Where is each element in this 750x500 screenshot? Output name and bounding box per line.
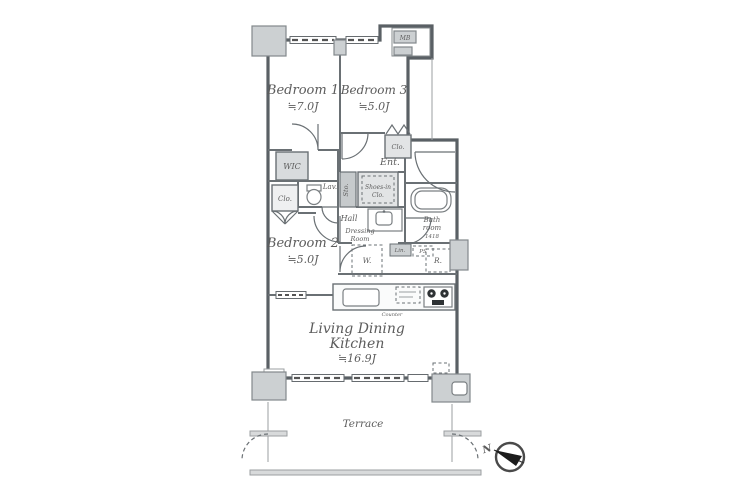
terrace-label: Terrace bbox=[343, 418, 384, 430]
toilet bbox=[307, 185, 321, 205]
dressing-label-2: Room bbox=[350, 235, 370, 243]
shoes-in-label-2: Clo. bbox=[372, 192, 384, 199]
planter-left bbox=[242, 434, 268, 460]
closet-left-label: Clo. bbox=[278, 195, 292, 203]
bathroom-label-1: Bath bbox=[423, 216, 441, 224]
planter-right bbox=[452, 434, 478, 460]
bedroom1-size: ≒7.0J bbox=[287, 100, 319, 113]
slop-sink bbox=[452, 382, 467, 395]
kitchen-counter bbox=[333, 284, 455, 310]
bedroom2-size: ≒5.0J bbox=[287, 253, 319, 266]
bathroom-label-3: 1418 bbox=[425, 234, 439, 240]
pipe-space-label: PS bbox=[418, 249, 427, 255]
floor-plan-page: MB bbox=[0, 0, 750, 500]
entrance-door bbox=[415, 152, 455, 192]
shoes-in-label-1: Shoes-in bbox=[365, 184, 391, 191]
counter-label: Counter bbox=[382, 312, 403, 318]
lavatory-label: Lav. bbox=[322, 183, 337, 191]
bedroom3-size: ≒5.0J bbox=[358, 100, 390, 113]
ldk-pipe-space bbox=[433, 363, 449, 373]
meter-box-small bbox=[394, 47, 412, 55]
dressing-label-1: Dressing bbox=[344, 227, 374, 235]
pillar-top-left bbox=[252, 26, 286, 56]
wic-label: WIC bbox=[283, 162, 301, 171]
stove bbox=[424, 287, 452, 307]
hall-label: Hall bbox=[340, 214, 358, 223]
floor-plan-drawing: MB bbox=[0, 0, 750, 500]
bedroom1-door bbox=[292, 124, 318, 150]
compass: N bbox=[480, 443, 524, 471]
bedroom2-window bbox=[276, 292, 306, 299]
pillar-right bbox=[450, 240, 468, 270]
ldk-label-1: Living Dining bbox=[308, 321, 405, 337]
pillar-bottom-left bbox=[252, 372, 286, 400]
bedroom2-label: Bedroom 2 bbox=[266, 236, 339, 251]
linen-label: Lin. bbox=[394, 248, 406, 254]
kitchen-sink bbox=[343, 289, 379, 306]
fridge-label: R. bbox=[433, 256, 442, 265]
ldk-size: ≒16.9J bbox=[338, 352, 377, 365]
ldk-label-2: Kitchen bbox=[329, 336, 385, 352]
terrace-windows bbox=[264, 363, 449, 382]
terrace-edge bbox=[250, 470, 481, 475]
bedroom3-door bbox=[342, 133, 368, 159]
bathtub bbox=[411, 188, 451, 212]
closet-bedroom3-label: Clo. bbox=[392, 143, 405, 151]
lavatory-door bbox=[322, 207, 338, 223]
bathroom-label-2: room bbox=[423, 224, 442, 232]
bedroom1-label: Bedroom 1 bbox=[266, 83, 339, 98]
entrance-label: Ent. bbox=[379, 157, 400, 168]
meter-box-alcove: MB bbox=[392, 28, 430, 56]
closet-double-doors bbox=[272, 211, 298, 224]
bedroom3-label: Bedroom 3 bbox=[340, 83, 408, 97]
storage-label: Sto. bbox=[342, 184, 350, 197]
washer-label: W. bbox=[363, 256, 372, 265]
meter-box-label: MB bbox=[399, 35, 411, 42]
north-label: N bbox=[480, 443, 494, 457]
